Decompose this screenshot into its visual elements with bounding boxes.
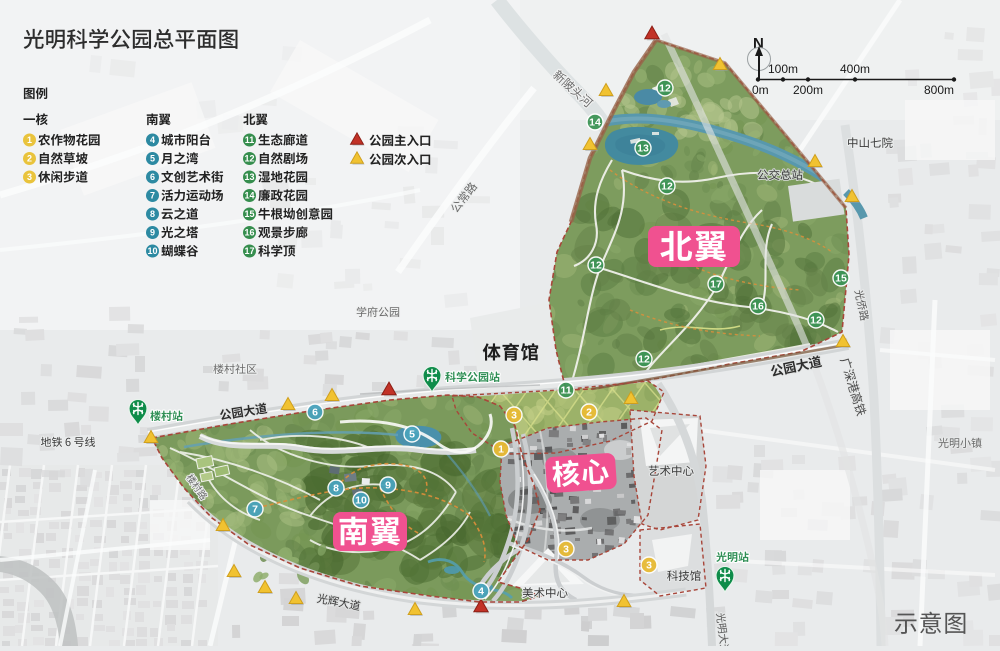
svg-text:16: 16 [752,301,764,313]
svg-text:12: 12 [810,315,822,327]
svg-text:5: 5 [150,154,155,164]
svg-text:17: 17 [710,279,722,291]
svg-text:9: 9 [150,228,155,238]
svg-text:16: 16 [244,228,254,238]
svg-text:10: 10 [147,246,157,256]
svg-text:8: 8 [333,483,339,495]
svg-text:13: 13 [244,172,254,182]
svg-text:15: 15 [244,209,254,219]
svg-text:17: 17 [244,246,254,256]
svg-text:100m: 100m [768,62,798,76]
svg-text:5: 5 [409,429,415,441]
svg-text:11: 11 [245,135,255,145]
svg-text:7: 7 [252,504,258,516]
svg-text:14: 14 [589,117,601,129]
svg-text:2: 2 [586,407,592,419]
svg-text:3: 3 [511,410,517,422]
svg-text:12: 12 [661,181,673,193]
svg-text:1: 1 [498,444,504,456]
svg-text:13: 13 [637,143,649,155]
svg-text:15: 15 [835,273,847,285]
svg-text:9: 9 [385,480,391,492]
svg-text:0m: 0m [752,83,769,97]
svg-text:200m: 200m [793,83,823,97]
svg-text:800m: 800m [924,83,954,97]
svg-text:10: 10 [355,495,367,507]
svg-text:7: 7 [150,191,155,201]
svg-text:12: 12 [590,260,602,272]
svg-text:6: 6 [150,172,155,182]
svg-text:14: 14 [244,191,254,201]
svg-text:1: 1 [27,135,32,145]
svg-text:4: 4 [150,135,155,145]
svg-text:2: 2 [27,154,32,164]
svg-text:12: 12 [638,354,650,366]
svg-text:11: 11 [560,385,571,397]
svg-text:8: 8 [150,209,155,219]
svg-text:12: 12 [244,154,254,164]
svg-text:6: 6 [312,407,318,419]
svg-text:12: 12 [659,83,671,95]
svg-text:400m: 400m [840,62,870,76]
svg-text:4: 4 [478,586,484,598]
svg-text:3: 3 [646,560,652,572]
svg-text:3: 3 [563,544,569,556]
svg-text:3: 3 [27,172,32,182]
